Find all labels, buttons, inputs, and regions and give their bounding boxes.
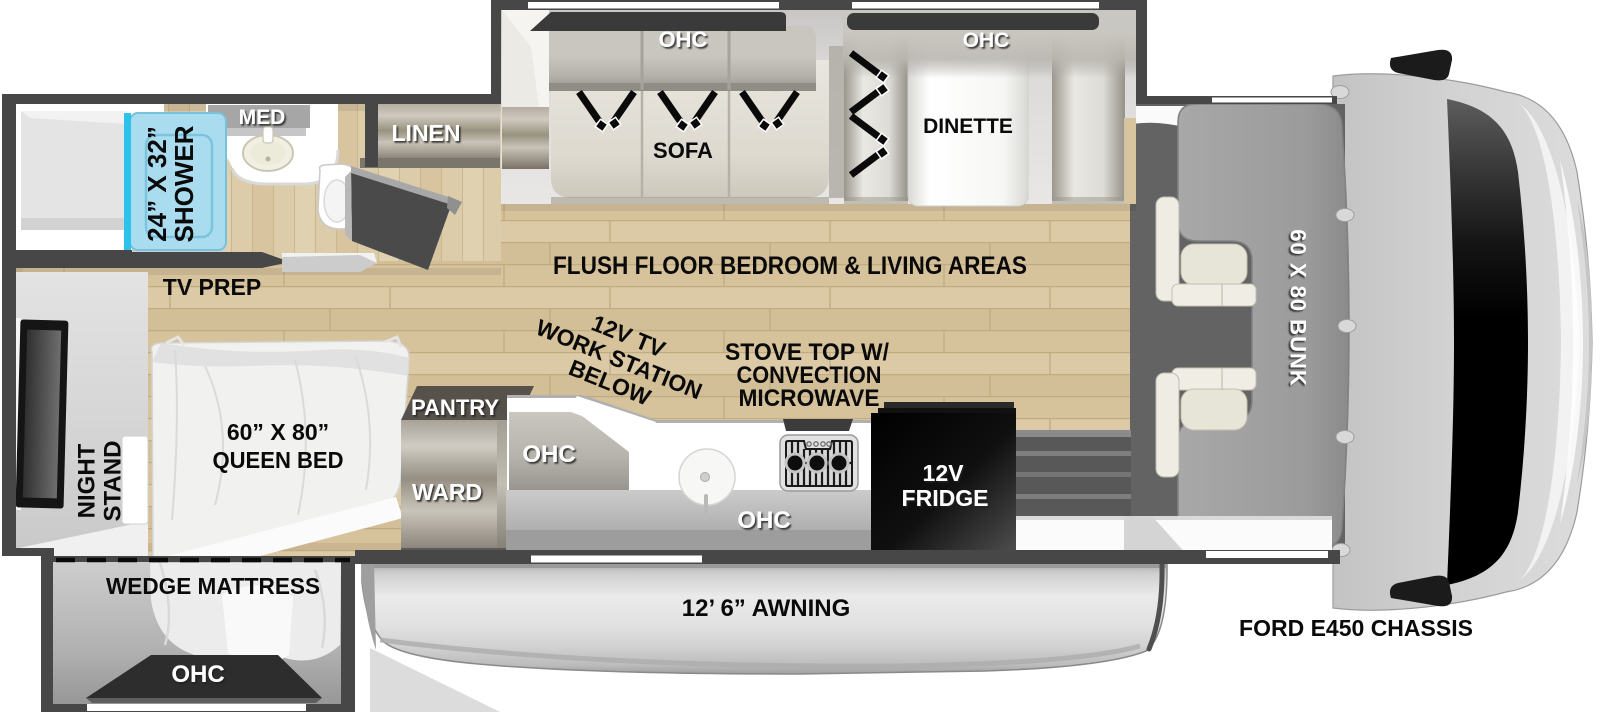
svg-text:PANTRY: PANTRY	[411, 395, 499, 420]
svg-text:MICROWAVE: MICROWAVE	[739, 385, 880, 412]
svg-text:SOFA: SOFA	[653, 138, 713, 163]
svg-text:12V: 12V	[923, 460, 965, 486]
svg-text:OHC: OHC	[171, 661, 224, 688]
svg-text:WEDGE MATTRESS: WEDGE MATTRESS	[106, 573, 320, 599]
svg-text:OHC: OHC	[522, 441, 575, 468]
svg-text:STAND: STAND	[100, 441, 127, 522]
svg-text:12’ 6” AWNING: 12’ 6” AWNING	[682, 595, 851, 622]
svg-text:60 X 80 BUNK: 60 X 80 BUNK	[1286, 229, 1311, 387]
svg-text:MED: MED	[239, 106, 286, 129]
svg-text:24” X 32”: 24” X 32”	[142, 126, 172, 242]
svg-text:60” X 80”: 60” X 80”	[227, 419, 329, 445]
svg-text:SHOWER: SHOWER	[169, 125, 199, 242]
svg-text:OHC: OHC	[737, 507, 790, 534]
svg-text:FRIDGE: FRIDGE	[902, 485, 989, 511]
svg-text:NIGHT: NIGHT	[74, 443, 101, 518]
svg-text:DINETTE: DINETTE	[923, 115, 1013, 138]
svg-text:FORD E450 CHASSIS: FORD E450 CHASSIS	[1239, 615, 1473, 641]
svg-text:OHC: OHC	[963, 29, 1010, 52]
svg-text:LINEN: LINEN	[392, 120, 461, 146]
svg-text:TV PREP: TV PREP	[163, 274, 261, 300]
svg-text:WARD: WARD	[412, 479, 482, 505]
svg-text:QUEEN BED: QUEEN BED	[213, 447, 344, 473]
svg-text:OHC: OHC	[659, 27, 708, 52]
svg-text:FLUSH FLOOR BEDROOM & LIVING A: FLUSH FLOOR BEDROOM & LIVING AREAS	[553, 252, 1027, 280]
